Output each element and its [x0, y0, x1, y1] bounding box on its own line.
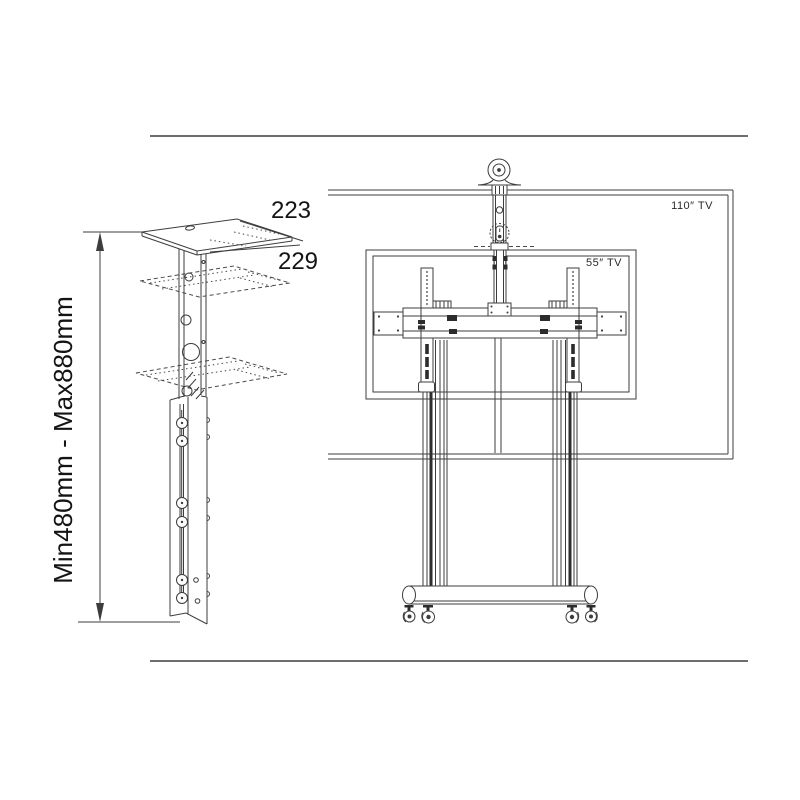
label-229: 229: [278, 248, 318, 275]
column-figure: Min480mm - Max880mm: [48, 197, 318, 624]
camera-mount-block: [492, 185, 507, 195]
label-223: 223: [271, 197, 311, 224]
diagram-canvas: 110″ TV 55″ TV Min480mm - Max880mm: [0, 0, 800, 800]
label-110-tv: 110″ TV: [671, 200, 713, 212]
bracket-lower-extension: [495, 338, 501, 453]
caster-icon: [586, 605, 598, 622]
clamp-tab-left: [433, 301, 451, 308]
rail-hole-dots: [426, 271, 428, 305]
height-dimension: Min480mm - Max880mm: [48, 232, 180, 622]
dashed-shelf-upper: [140, 266, 290, 297]
caster-icon: [403, 605, 415, 622]
label-height-range: Min480mm - Max880mm: [48, 296, 78, 584]
arrow-down-icon: [96, 603, 104, 622]
base-bar: [403, 586, 598, 604]
casters: [403, 605, 597, 623]
tv-cart-figure: 110″ TV 55″ TV: [328, 159, 733, 623]
camera-bracket-upper: [474, 195, 534, 250]
technical-diagram-page: 110″ TV 55″ TV Min480mm - Max880mm: [0, 0, 800, 800]
rail-hole-dots: [572, 271, 574, 305]
clamp-tab-right: [549, 301, 567, 308]
camera-bracket-lower: [488, 250, 511, 316]
inner-pole: [179, 249, 206, 399]
caster-icon: [566, 605, 579, 623]
bracket-base-plate: [488, 303, 511, 316]
label-55-tv: 55″ TV: [586, 257, 622, 269]
caster-icon: [422, 605, 435, 623]
arrow-up-icon: [96, 232, 104, 251]
outer-pole: [170, 396, 210, 624]
dashed-shelf-lower: [136, 357, 287, 390]
